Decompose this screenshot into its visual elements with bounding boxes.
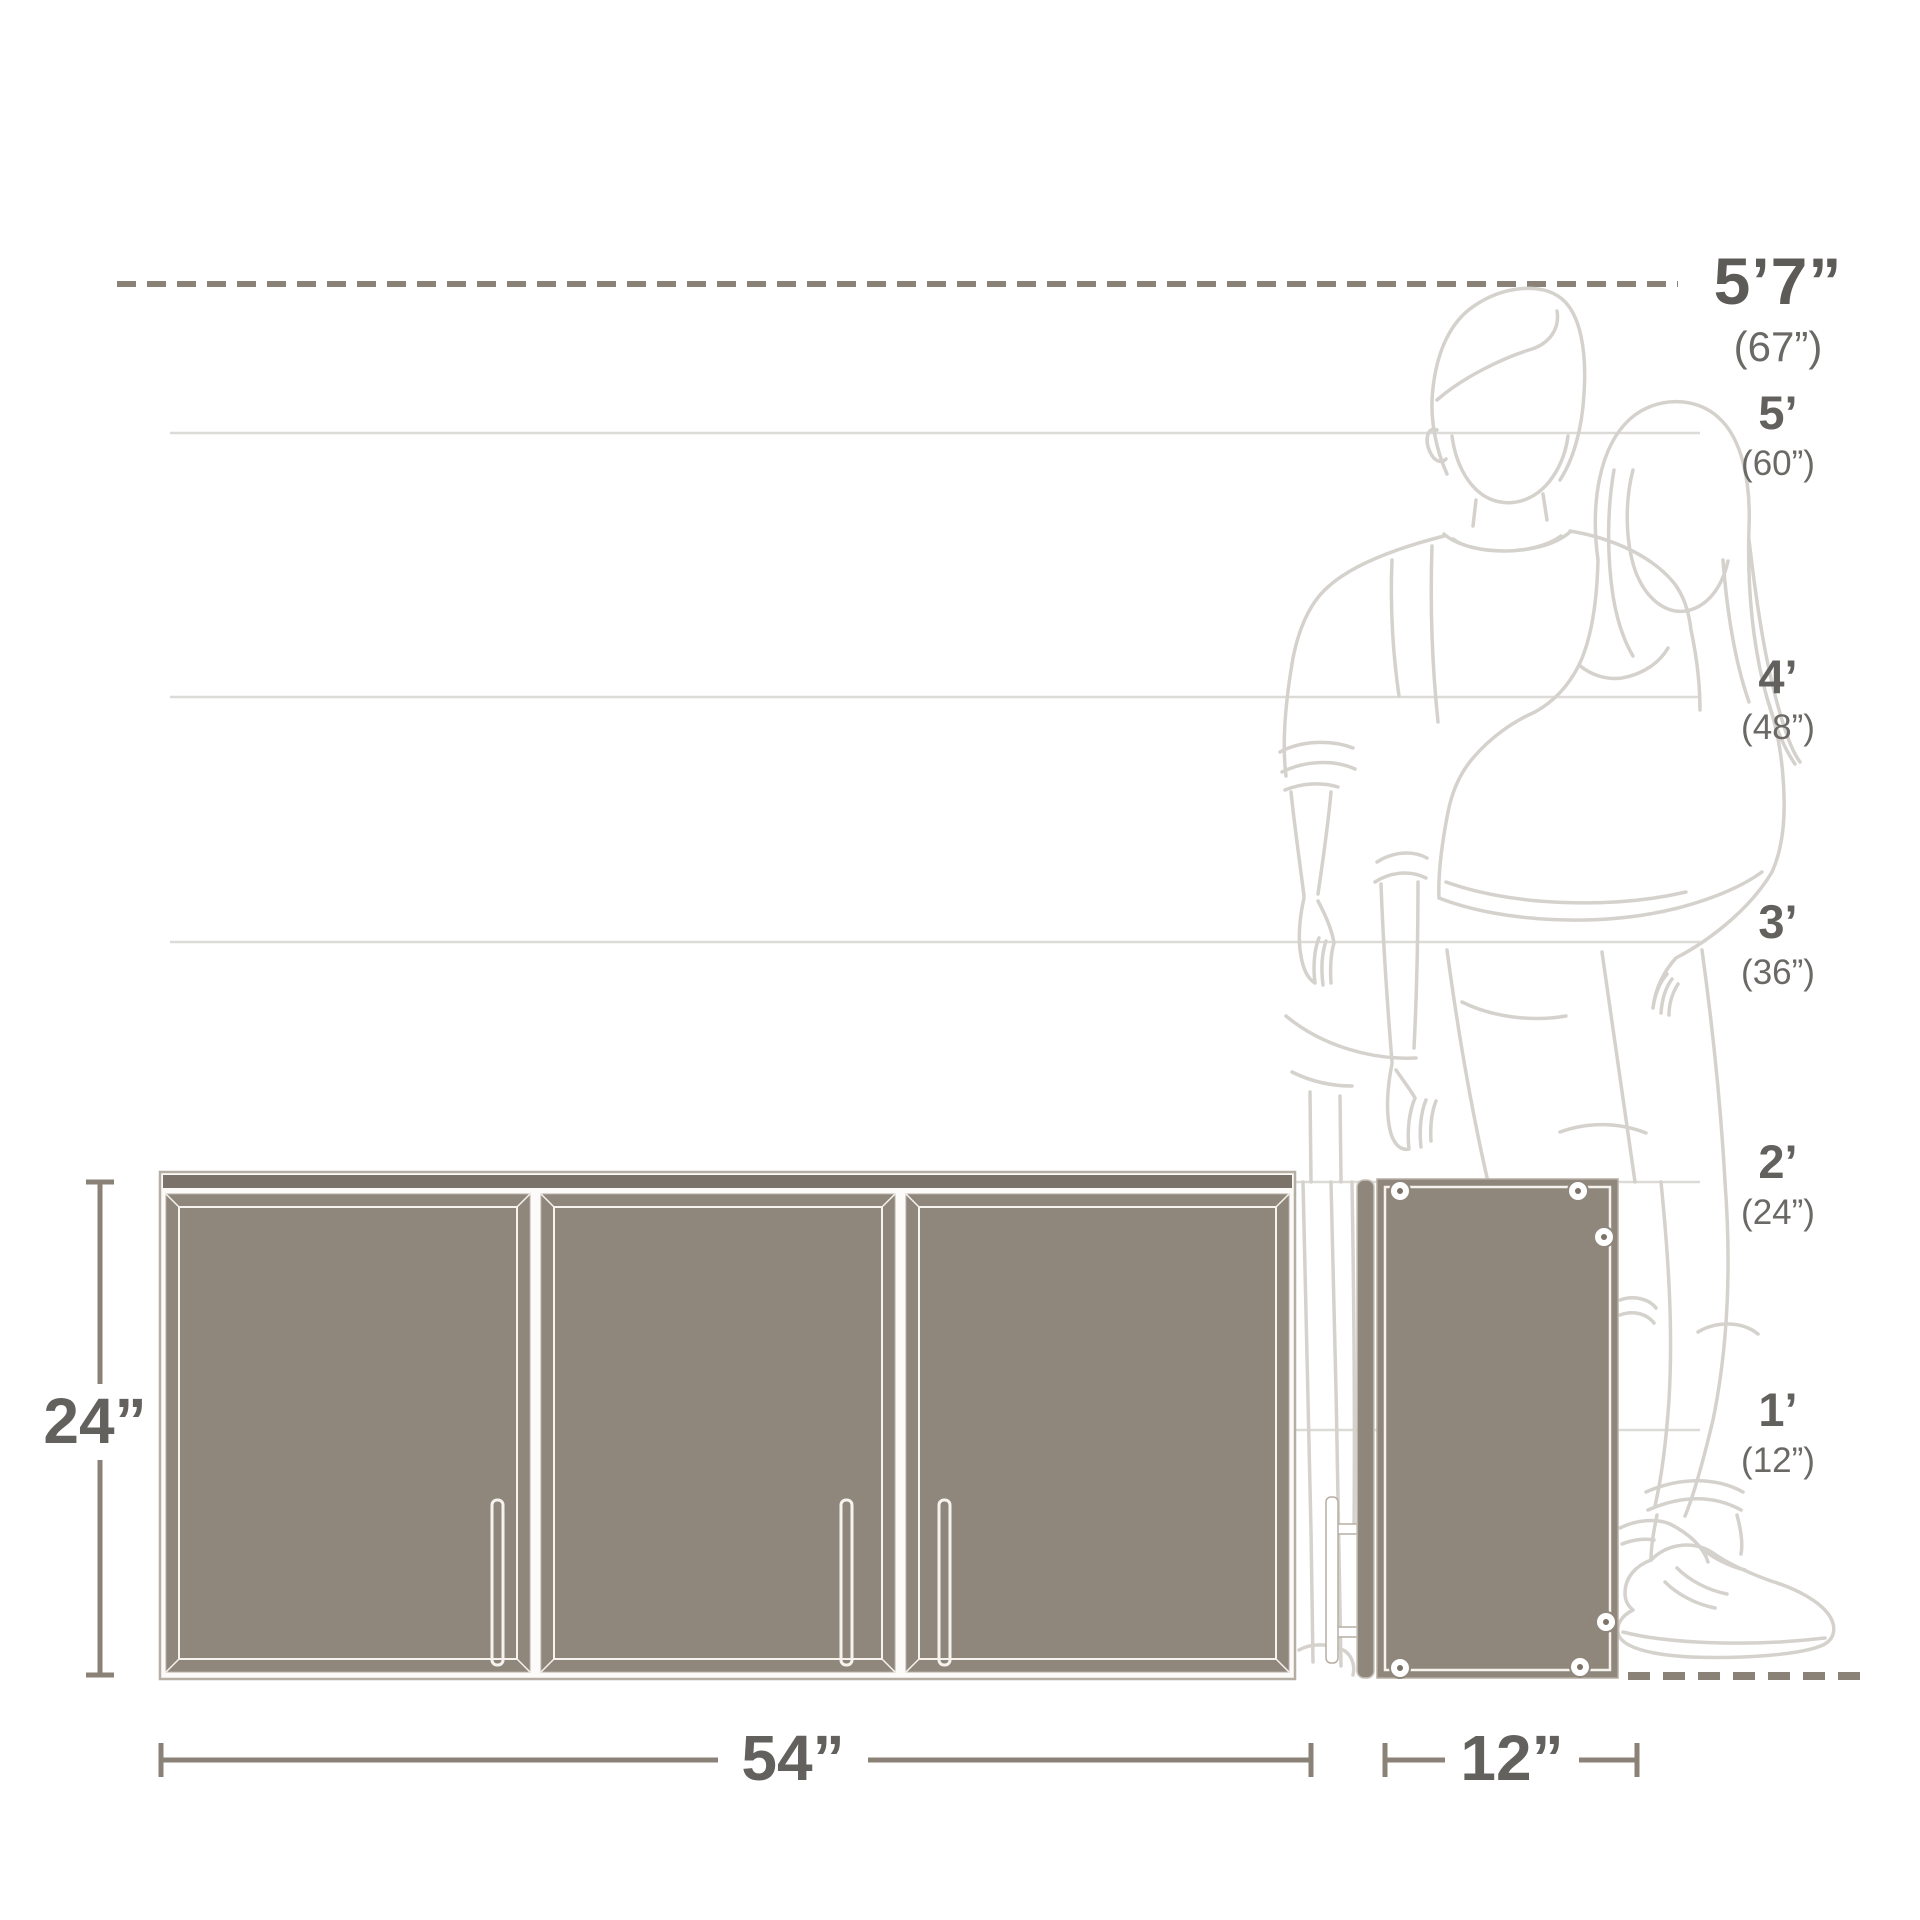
man-trouser-lines	[1310, 1092, 1341, 1182]
cam-screw	[1594, 1227, 1614, 1247]
height-marker-label: 5’7”	[1650, 245, 1906, 317]
depth-dimension-label: 12”	[1412, 1726, 1612, 1790]
wall-cabinet-side-view	[1326, 1179, 1618, 1678]
cam-screw	[1568, 1181, 1588, 1201]
cabinet-door-left	[166, 1194, 530, 1672]
diagram-artwork	[0, 0, 1920, 1920]
scale-sublabel-1ft: (12”)	[1658, 1440, 1898, 1482]
cam-screw	[1570, 1657, 1590, 1677]
woman-hair-left	[1535, 560, 1668, 712]
woman-back-shoe	[1620, 1521, 1708, 1562]
man-right-sleeve-cuff	[1375, 853, 1427, 882]
man-shirt-hem	[1286, 1016, 1416, 1086]
scale-label-3ft: 3’	[1658, 899, 1898, 945]
man-right-forearm	[1381, 882, 1418, 1062]
cabinet-front-top-edge	[163, 1175, 1292, 1188]
man-right-hand	[1388, 1064, 1436, 1149]
side-panel	[1377, 1179, 1618, 1678]
cam-screw	[1390, 1658, 1410, 1678]
wall-cabinet-front-view	[160, 1172, 1295, 1679]
height-dimension-label: 24”	[0, 1389, 190, 1453]
scale-label-4ft: 4’	[1658, 654, 1898, 700]
scale-label-5ft: 5’	[1658, 390, 1898, 436]
man-jaw	[1452, 436, 1568, 503]
cam-screw	[1390, 1181, 1410, 1201]
scale-label-2ft: 2’	[1658, 1139, 1898, 1185]
man-left-forearm	[1291, 792, 1331, 896]
cabinet-door-right	[906, 1194, 1289, 1672]
man-rolled-sleeve	[1280, 742, 1355, 790]
woman-fingertips	[1620, 1298, 1656, 1323]
woman-left-shoulder	[1448, 712, 1535, 812]
width-dimension-label: 54”	[693, 1726, 893, 1790]
dimension-diagram: 5’7” (67”) 5’ (60”) 4’ (48”) 3’ (36”) 2’…	[0, 0, 1920, 1920]
man-shirt-folds	[1391, 546, 1438, 722]
man-neck	[1473, 494, 1547, 526]
side-door-slab	[1357, 1180, 1374, 1678]
woman-sneaker	[1618, 1545, 1834, 1657]
scale-sublabel-2ft: (24”)	[1658, 1192, 1898, 1234]
man-collar	[1444, 532, 1570, 551]
cam-screw	[1596, 1612, 1616, 1632]
scale-label-1ft: 1’	[1658, 1387, 1898, 1433]
cabinet-door-middle	[541, 1194, 895, 1672]
scale-sublabel-5ft: (60”)	[1658, 443, 1898, 485]
height-marker-sublabel: (67”)	[1650, 326, 1906, 368]
scale-sublabel-4ft: (48”)	[1658, 707, 1898, 749]
scale-sublabel-3ft: (36”)	[1658, 952, 1898, 994]
man-left-shoulder-arm	[1284, 536, 1444, 776]
